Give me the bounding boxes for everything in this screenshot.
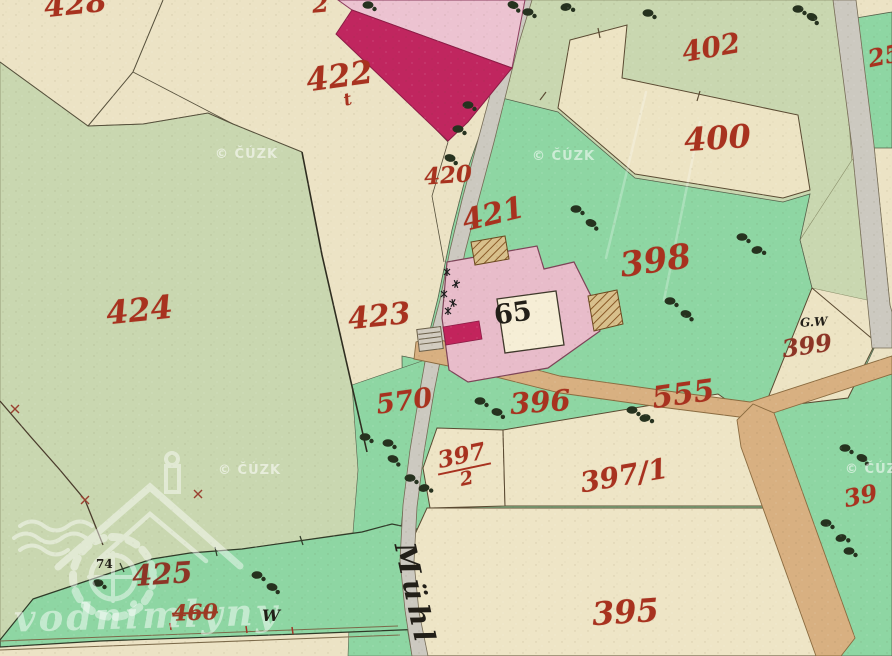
parcel-label-2-top: 2: [311, 0, 330, 17]
watermark-copyright: © ČÚZK: [215, 147, 278, 162]
parcel-label-395: 395: [591, 594, 660, 631]
parcel-label-400: 400: [683, 120, 752, 157]
parcel-label-398: 398: [618, 239, 693, 283]
parcel-label-396: 396: [509, 386, 571, 419]
watermark-site-text: vodnimlyny: [13, 590, 280, 641]
parcel-label-399: 399: [781, 331, 834, 362]
annotation-w: W: [262, 608, 280, 624]
watermark-copyright: © ČÚZK: [845, 462, 892, 477]
parcel-label-39: 39: [842, 481, 880, 511]
parcel-label-420: 420: [423, 162, 473, 188]
annotation-74: 74: [96, 558, 113, 570]
parcel-label-422: 422: [304, 56, 375, 97]
house-number-65: 65: [492, 298, 533, 330]
annotation-gw: G.W: [800, 315, 828, 328]
parcel-label-25: 25: [866, 41, 892, 71]
parcel-label-424: 424: [105, 291, 175, 330]
parcel-label-460-struck: 460: [172, 601, 219, 625]
parcel-label-555: 555: [650, 376, 716, 414]
watermark-copyright: © ČÚZK: [218, 463, 281, 478]
cadastral-map-canvas[interactable]: vodnimlyny © ČÚZK © ČÚZK © ČÚZK © ČÚZK 4…: [0, 0, 892, 656]
parcel-label-425: 425: [131, 558, 193, 591]
parcel-label-423: 423: [347, 299, 412, 335]
parcel-label-570: 570: [374, 384, 434, 419]
watermark-copyright: © ČÚZK: [532, 149, 595, 164]
